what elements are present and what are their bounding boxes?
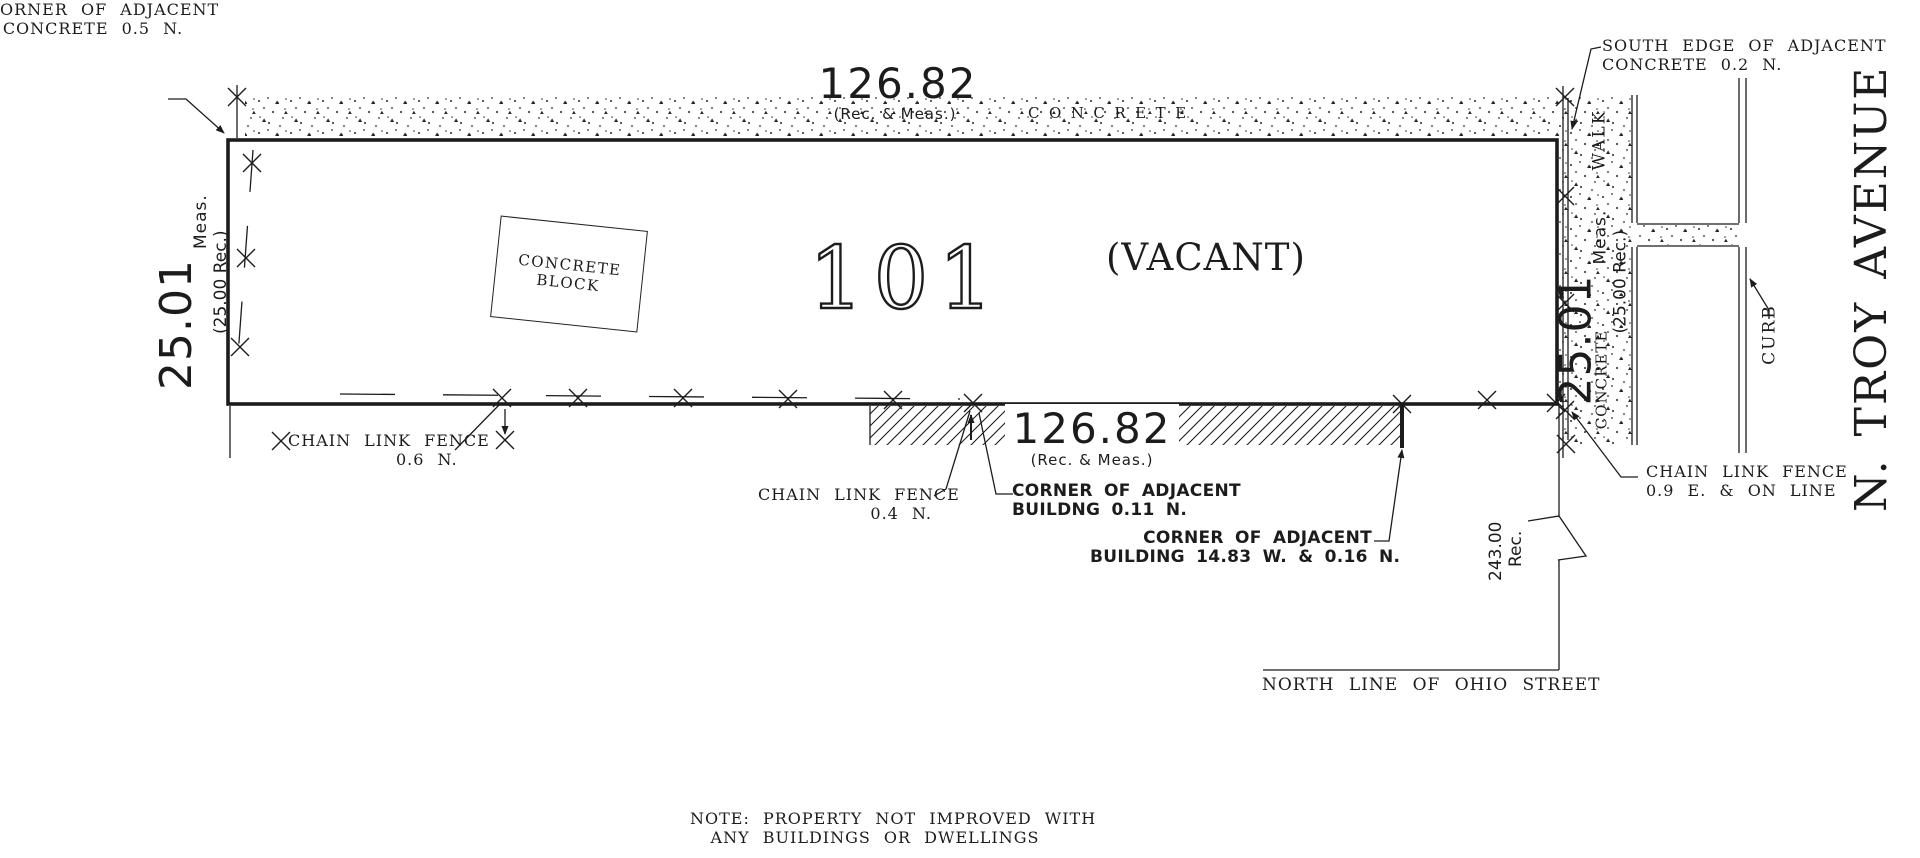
building1-label: CORNER OF ADJACENT BUILDNG 0.11 N. — [1012, 482, 1241, 520]
fence-south-label: CHAIN LINK FENCE 0.4 N. — [758, 485, 932, 523]
ne-corner-label: SOUTH EDGE OF ADJACENT CONCRETE 0.2 N. — [1602, 36, 1887, 74]
walk-connector-band — [1637, 224, 1739, 245]
south-dimension-value: 126.82 — [1005, 404, 1180, 453]
building2-label: CORNER OF ADJACENT BUILDING 14.83 W. & 0… — [1090, 529, 1372, 567]
building2-line1: CORNER OF ADJACENT — [1090, 529, 1372, 548]
nw-corner-label: ORNER OF ADJACENT CONCRETE 0.5 N. — [0, 0, 186, 38]
nw-corner-line1: ORNER OF ADJACENT — [0, 0, 186, 19]
north-concrete-label: CONCRETE — [1028, 104, 1196, 123]
fence-east-line2: 0.9 E. & ON LINE — [1646, 481, 1848, 500]
ne-corner-line1: SOUTH EDGE OF ADJACENT — [1602, 36, 1887, 55]
south-dimension-note-text: (Rec. & Meas.) — [1023, 451, 1162, 469]
fence-south-line1: CHAIN LINK FENCE — [758, 485, 932, 504]
nw-corner-line2: CONCRETE 0.5 N. — [0, 19, 186, 38]
building1-line1: CORNER OF ADJACENT — [1012, 482, 1241, 501]
vacant-label: (VACANT) — [1106, 248, 1306, 267]
building2-leader — [1374, 450, 1402, 541]
fence-west-line2: 0.6 N. — [288, 450, 490, 469]
fence-west-line1: CHAIN LINK FENCE — [288, 431, 490, 450]
fence-east-line1: CHAIN LINK FENCE — [1646, 462, 1848, 481]
ohio-frontage-note: Rec. — [1506, 501, 1526, 581]
parcel-number: 101 — [809, 229, 1003, 329]
curb-label: CURB — [1761, 302, 1780, 368]
concrete-block: CONCRETE BLOCK — [490, 216, 648, 333]
west-dimension-meas: Meas. — [177, 194, 225, 249]
survey-note-line2: ANY BUILDINGS OR DWELLINGS — [690, 828, 1060, 847]
north-dimension-note: (Rec. & Meas.) — [795, 106, 995, 123]
survey-plat: 101 ORNER OF ADJACENT CONCRETE 0.5 N. SO… — [0, 0, 1920, 858]
walk-concrete-label: CONCRETE — [1593, 330, 1612, 430]
ohio-street-label: NORTH LINE OF OHIO STREET — [1262, 676, 1600, 695]
survey-linework: 101 — [0, 0, 1920, 858]
building2-line2: BUILDING 14.83 W. & 0.16 N. — [1090, 548, 1372, 567]
fence-west-label: CHAIN LINK FENCE 0.6 N. — [288, 431, 490, 469]
building1-line2: BUILDNG 0.11 N. — [1012, 501, 1241, 520]
ohio-frontage-dim: 243.00 Rec. — [1486, 501, 1528, 581]
survey-note-line1: NOTE: PROPERTY NOT IMPROVED WITH — [690, 809, 1060, 828]
ohio-frontage-value: 243.00 — [1486, 501, 1506, 581]
south-dimension: 126.82 — [1002, 407, 1182, 451]
street-name: N. TROY AVENUE — [1842, 72, 1902, 512]
east-dimension: 25.01Meas. (25.00 Rec.) — [1553, 191, 1627, 406]
south-dimension-note: (Rec. & Meas.) — [1002, 451, 1182, 469]
east-dimension-meas: Meas. — [1577, 210, 1625, 265]
walk-label: WALK — [1591, 111, 1610, 171]
line-break-symbol — [1528, 516, 1586, 560]
fence-east-label: CHAIN LINK FENCE 0.9 E. & ON LINE — [1646, 462, 1848, 500]
west-dimension: 25.01Meas. (25.00 Rec.) — [153, 180, 227, 390]
north-dimension: 126.82 — [798, 62, 998, 106]
nw-leader — [168, 99, 224, 133]
west-dimension-value: 25.01 — [151, 259, 202, 390]
fence-south-line2: 0.4 N. — [758, 504, 932, 523]
survey-note: NOTE: PROPERTY NOT IMPROVED WITH ANY BUI… — [690, 809, 1060, 847]
